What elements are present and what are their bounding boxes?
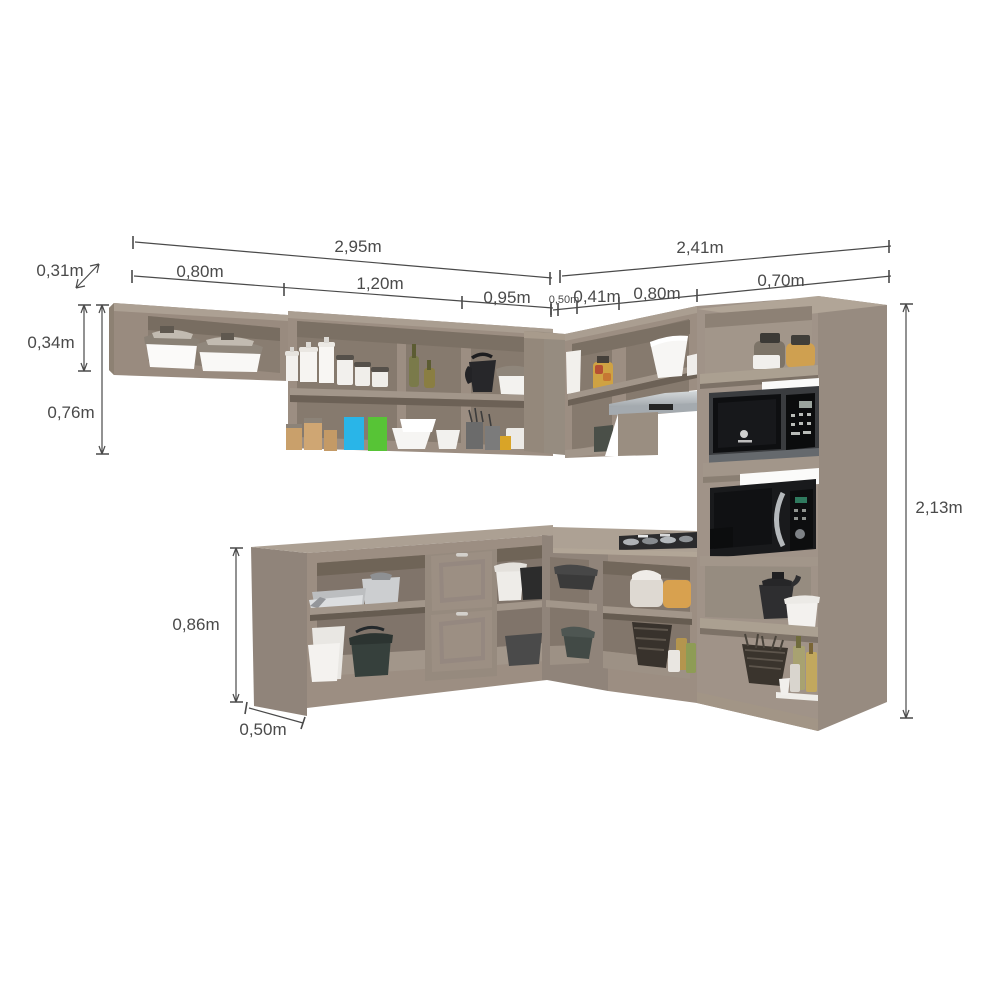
svg-text:0,80m: 0,80m xyxy=(633,284,680,303)
svg-text:0,31m: 0,31m xyxy=(36,261,83,280)
svg-text:0,41m: 0,41m xyxy=(573,287,620,306)
svg-text:2,41m: 2,41m xyxy=(676,238,723,257)
svg-text:1,20m: 1,20m xyxy=(356,274,403,293)
svg-text:0,50m: 0,50m xyxy=(239,720,286,739)
svg-text:2,95m: 2,95m xyxy=(334,237,381,256)
svg-text:0,80m: 0,80m xyxy=(176,262,223,281)
svg-text:0,70m: 0,70m xyxy=(757,271,804,290)
svg-text:0,95m: 0,95m xyxy=(483,288,530,307)
svg-text:0,86m: 0,86m xyxy=(172,615,219,634)
svg-text:0,34m: 0,34m xyxy=(27,333,74,352)
svg-text:0,76m: 0,76m xyxy=(47,403,94,422)
svg-text:2,13m: 2,13m xyxy=(915,498,962,517)
